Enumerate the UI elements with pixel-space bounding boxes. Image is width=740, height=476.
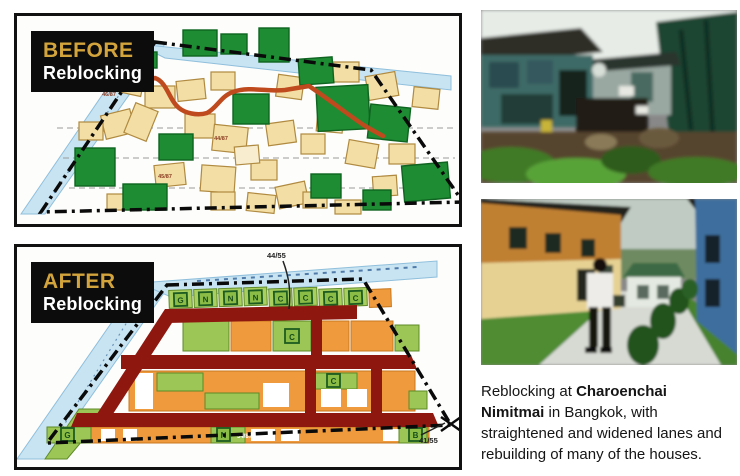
before-label: BEFORE <box>43 39 142 63</box>
caption-line: straightened and widened lanes and <box>481 423 739 444</box>
plot-label: 46/87 <box>102 92 116 98</box>
plot-label: 44/87 <box>214 136 228 142</box>
plot-row-2 <box>183 321 419 351</box>
before-map-panel: 46/87 44/87 45/87 BEFORE Reblocking <box>14 13 462 227</box>
house-letter: C <box>289 333 295 342</box>
house-letter: B <box>413 431 419 440</box>
vertical-lane <box>371 367 382 415</box>
ref-label-corner: 41/55 <box>419 436 438 445</box>
house-letter: N <box>252 293 258 302</box>
house-letter: C <box>278 294 284 303</box>
house-letter: C <box>328 295 334 304</box>
after-label-box: AFTER Reblocking <box>31 262 154 323</box>
photo-lane-after <box>481 199 737 365</box>
house-letter: N <box>203 295 209 304</box>
house-letter: C <box>331 377 337 386</box>
figure-caption: Reblocking at Charoenchai Nimitmai in Ba… <box>481 381 739 465</box>
house-letter: G <box>177 296 184 305</box>
middle-lane <box>121 355 417 369</box>
photo-settlement-before <box>481 10 737 183</box>
lower-lane <box>71 413 439 427</box>
after-label: AFTER <box>43 270 142 294</box>
house-letter: G <box>64 431 70 440</box>
caption-line: Nimitmai in Bangkok, with <box>481 402 739 423</box>
photo2-scene <box>481 199 737 365</box>
page: 46/87 44/87 45/87 BEFORE Reblocking <box>0 0 740 476</box>
vertical-lane <box>311 309 322 357</box>
plot-row-3 <box>129 371 427 411</box>
house-letter: N <box>227 294 233 303</box>
photo1-scene <box>481 10 737 183</box>
after-sublabel: Reblocking <box>43 294 142 314</box>
caption-line: rebuilding of many of the houses. <box>481 444 739 465</box>
vertical-lane <box>305 367 316 415</box>
after-map-panel: G N N N C C C C C C <box>14 244 462 470</box>
caption-line: Reblocking at Charoenchai <box>481 381 739 402</box>
ref-label-top: 44/55 <box>267 251 286 260</box>
before-sublabel: Reblocking <box>43 63 142 83</box>
before-label-box: BEFORE Reblocking <box>31 31 154 92</box>
plot-label: 45/87 <box>158 174 172 180</box>
house-letter: C <box>303 294 309 303</box>
house-letter: C <box>353 294 359 303</box>
